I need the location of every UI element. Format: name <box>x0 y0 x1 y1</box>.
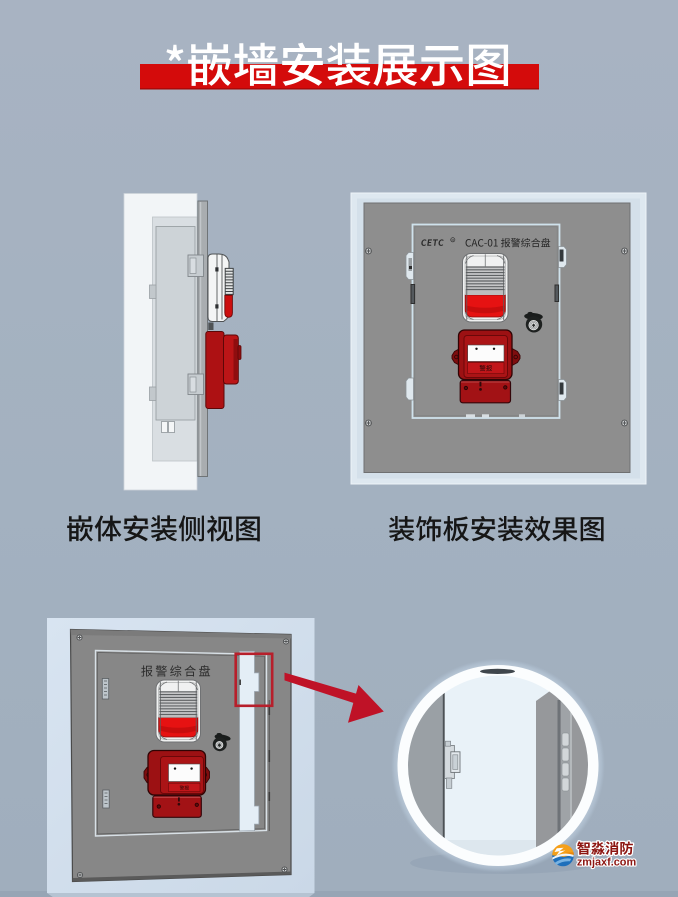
svg-text:zmjaxf.com: zmjaxf.com <box>577 856 637 868</box>
svg-text:R: R <box>451 238 454 242</box>
